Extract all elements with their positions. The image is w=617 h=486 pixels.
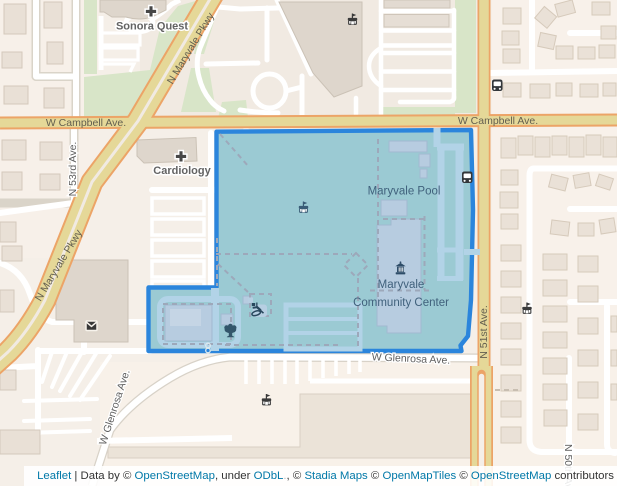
svg-text:W Campbell Ave.: W Campbell Ave. xyxy=(458,115,538,127)
svg-text:Sonora Quest: Sonora Quest xyxy=(116,21,188,33)
svg-text:Community Center: Community Center xyxy=(353,297,449,309)
svg-text:Cardiology: Cardiology xyxy=(153,165,211,177)
svg-text:Maryvale: Maryvale xyxy=(378,279,425,291)
svg-text:W Campbell Ave.: W Campbell Ave. xyxy=(46,117,126,129)
svg-text:N 51st Ave.: N 51st Ave. xyxy=(478,305,490,359)
svg-text:N 53rd Ave.: N 53rd Ave. xyxy=(67,142,79,197)
svg-text:Maryvale Pool: Maryvale Pool xyxy=(368,186,441,198)
